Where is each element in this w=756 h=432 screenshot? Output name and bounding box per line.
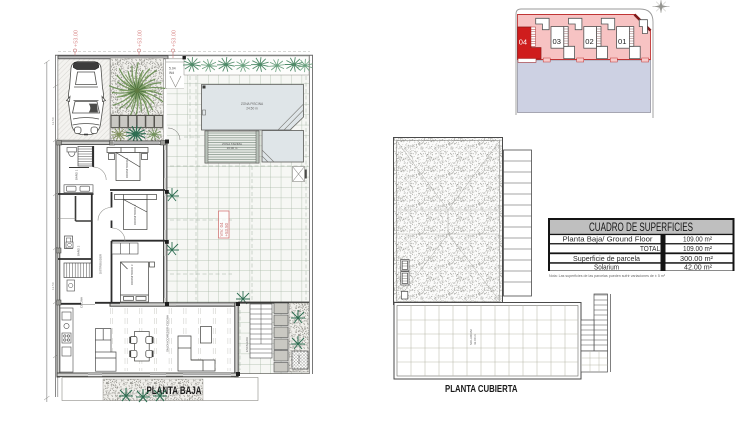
svg-text:DORMITORIO 2: DORMITORIO 2: [133, 204, 137, 225]
svg-text:04: 04: [519, 38, 527, 47]
svg-text:COCINA: COCINA: [80, 297, 84, 308]
svg-text:ESCALERA: ESCALERA: [245, 337, 249, 352]
svg-text:DUCHA: DUCHA: [297, 355, 301, 364]
svg-text:02: 02: [585, 37, 593, 46]
svg-text:+53.50: +53.50: [224, 222, 229, 236]
svg-text:Nota: Las superficies de las p: Nota: Las superficies de las parcelas pu…: [549, 274, 666, 278]
svg-text:12.50: 12.50: [51, 282, 55, 290]
svg-text:300.00 m²: 300.00 m²: [680, 254, 713, 263]
svg-text:DORMITORIO 3: DORMITORIO 3: [130, 264, 134, 285]
svg-text:03: 03: [553, 37, 561, 46]
svg-text:24.50 m: 24.50 m: [246, 107, 258, 111]
svg-text:12.50: 12.50: [51, 117, 55, 125]
svg-text:Wd: Wd: [169, 71, 174, 75]
svg-text:BAÑO 2: BAÑO 2: [76, 245, 81, 256]
svg-text:16.00 m: 16.00 m: [227, 146, 238, 150]
svg-text:ZONA PISCINA: ZONA PISCINA: [241, 102, 264, 106]
svg-text:109.00 m²: 109.00 m²: [683, 244, 712, 253]
svg-text:PLANTA CUBIERTA: PLANTA CUBIERTA: [445, 384, 518, 395]
svg-text:42.00 m: 42.00 m: [473, 334, 477, 345]
svg-text:Planta Baja/ Ground Floor: Planta Baja/ Ground Floor: [563, 235, 654, 244]
svg-text:+53.00: +53.00: [172, 30, 178, 47]
svg-text:109.00 m²: 109.00 m²: [683, 235, 712, 244]
svg-text:BAÑO 1: BAÑO 1: [74, 169, 79, 180]
svg-text:42.00 m²: 42.00 m²: [684, 263, 712, 272]
svg-text:Solarium: Solarium: [594, 263, 619, 272]
svg-text:SALON-COMEDOR-COCINA: SALON-COMEDOR-COCINA: [166, 315, 170, 352]
svg-text:DORMITORIO 1: DORMITORIO 1: [125, 157, 129, 178]
svg-text:TOTAL: TOTAL: [640, 244, 660, 253]
svg-text:+53.00: +53.00: [138, 30, 144, 47]
svg-text:DISTRIBUIDOR: DISTRIBUIDOR: [99, 254, 103, 274]
svg-text:Superficie de parcela: Superficie de parcela: [573, 254, 641, 263]
svg-text:5.04: 5.04: [169, 67, 176, 71]
svg-text:01: 01: [618, 37, 626, 46]
svg-text:CUADRO DE SUPERFICIES: CUADRO DE SUPERFICIES: [589, 222, 693, 234]
svg-text:+53.00: +53.00: [74, 30, 80, 47]
